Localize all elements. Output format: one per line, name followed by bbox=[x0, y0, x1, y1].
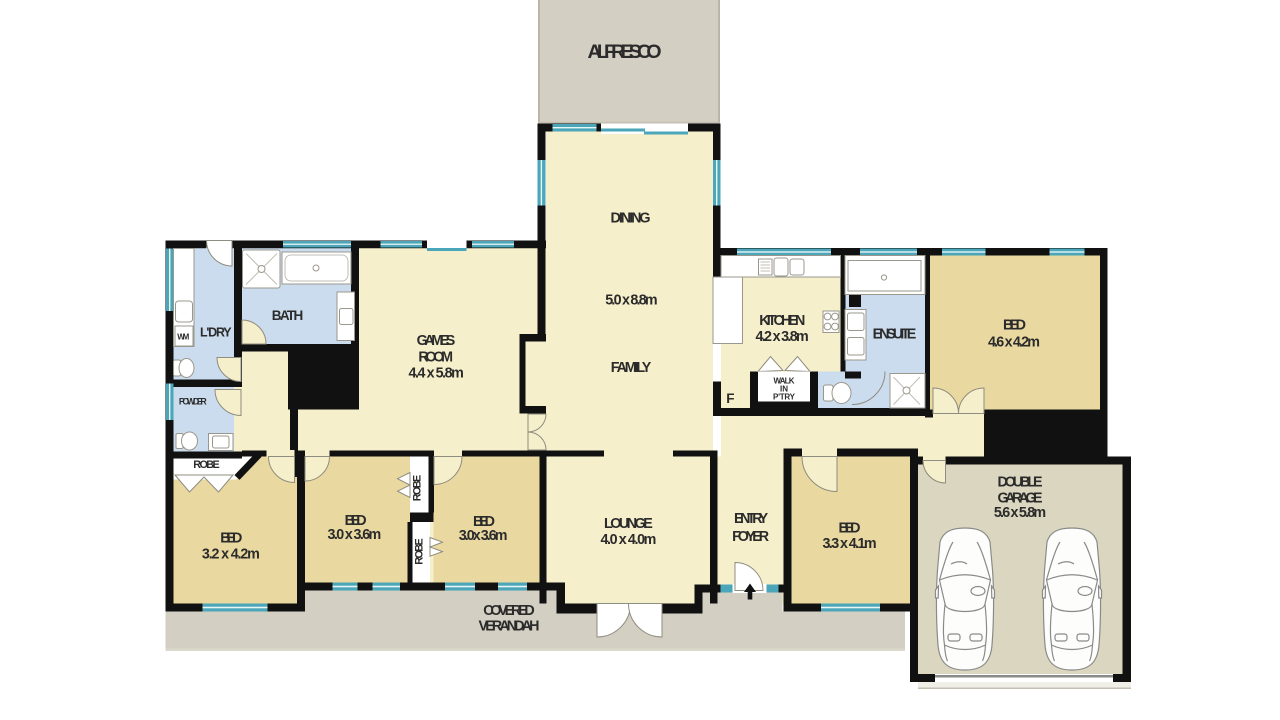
svg-text:WM: WM bbox=[177, 333, 189, 342]
svg-text:3.0 x 3.6m: 3.0 x 3.6m bbox=[328, 527, 382, 543]
svg-text:5.6 x 5.8m: 5.6 x 5.8m bbox=[994, 505, 1046, 521]
svg-text:4.0 x 4.0m: 4.0 x 4.0m bbox=[600, 532, 656, 548]
svg-text:GAMES: GAMES bbox=[417, 333, 456, 349]
svg-text:BED: BED bbox=[1003, 318, 1026, 334]
svg-text:ROOM: ROOM bbox=[418, 350, 453, 366]
svg-text:F: F bbox=[726, 391, 734, 406]
svg-text:KITCHEN: KITCHEN bbox=[759, 313, 805, 329]
svg-text:3.0x 3.6m: 3.0x 3.6m bbox=[459, 528, 508, 544]
svg-text:P'TRY: P'TRY bbox=[773, 393, 796, 402]
svg-text:4.4 x 5.8m: 4.4 x 5.8m bbox=[409, 366, 464, 382]
svg-text:4.2 x 3.8m: 4.2 x 3.8m bbox=[756, 329, 809, 345]
svg-text:3.2 x 4.2m: 3.2 x 4.2m bbox=[202, 547, 260, 563]
svg-text:ROBE: ROBE bbox=[412, 475, 424, 501]
svg-text:BATH: BATH bbox=[272, 308, 304, 323]
svg-text:FAMILY: FAMILY bbox=[611, 360, 652, 376]
svg-text:L'DRY: L'DRY bbox=[200, 326, 232, 340]
svg-text:5.0 x 8.8m: 5.0 x 8.8m bbox=[605, 293, 657, 309]
svg-text:FOYER: FOYER bbox=[732, 529, 770, 545]
svg-text:LOUNGE: LOUNGE bbox=[604, 516, 653, 532]
svg-text:VERANDAH: VERANDAH bbox=[479, 618, 540, 634]
svg-text:ROBE: ROBE bbox=[414, 538, 426, 564]
svg-text:ROBE: ROBE bbox=[193, 459, 219, 471]
svg-text:ALFRESCO: ALFRESCO bbox=[588, 41, 662, 63]
svg-text:4.6 x 4.2m: 4.6 x 4.2m bbox=[988, 335, 1040, 351]
svg-text:BED: BED bbox=[839, 521, 861, 537]
svg-text:DOUBLE: DOUBLE bbox=[997, 475, 1042, 491]
svg-text:3.3 x 4.1m: 3.3 x 4.1m bbox=[822, 536, 876, 552]
svg-text:COVERED: COVERED bbox=[483, 603, 535, 619]
svg-text:ENTRY: ENTRY bbox=[734, 511, 769, 527]
svg-text:POWDER: POWDER bbox=[179, 397, 207, 407]
svg-text:ENSUITE: ENSUITE bbox=[873, 327, 917, 343]
svg-text:BED: BED bbox=[220, 531, 242, 547]
svg-text:DINING: DINING bbox=[611, 211, 651, 227]
